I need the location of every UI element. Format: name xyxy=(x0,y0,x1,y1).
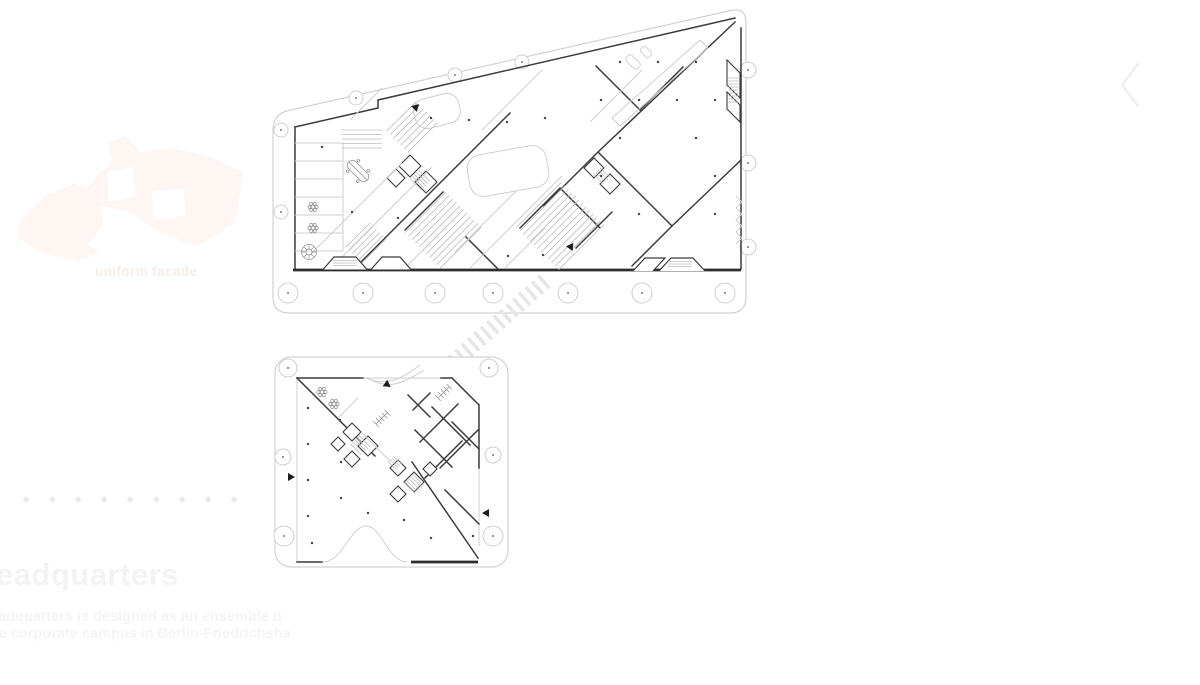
slide-canvas: uniform facade eadquarters eadquarters i… xyxy=(0,0,1200,685)
massing-illustration xyxy=(18,136,243,262)
interior-column-dot xyxy=(638,99,640,101)
column-center-dot xyxy=(492,454,494,456)
column-center-dot xyxy=(747,162,749,164)
interior-column-dot xyxy=(506,121,508,123)
column-center-dot xyxy=(641,292,643,294)
interior-column-dot xyxy=(307,443,309,445)
column-center-dot xyxy=(488,367,490,369)
interior-column-dot xyxy=(367,512,369,514)
interior-column-dot xyxy=(311,542,313,544)
column-center-dot xyxy=(521,61,523,63)
column-center-dot xyxy=(280,129,282,131)
column-center-dot xyxy=(282,456,284,458)
column-center-dot xyxy=(355,97,357,99)
interior-column-dot xyxy=(339,419,341,421)
interior-column-dot xyxy=(321,146,323,148)
column-center-dot xyxy=(567,292,569,294)
massing-window-2 xyxy=(152,188,186,220)
interior-column-dot xyxy=(600,99,602,101)
column-center-dot xyxy=(283,535,285,537)
interior-column-dot xyxy=(542,254,544,256)
floor-plan-large xyxy=(273,10,756,313)
interior-column-dot xyxy=(619,137,621,139)
interior-column-dot xyxy=(714,213,716,215)
interior-column-dot xyxy=(307,479,309,481)
column-center-dot xyxy=(492,535,494,537)
interior-column-dot xyxy=(507,255,509,257)
interior-column-dot xyxy=(676,99,678,101)
massing-window-1 xyxy=(107,167,135,202)
column-center-dot xyxy=(280,211,282,213)
interior-column-dot xyxy=(340,497,342,499)
interior-column-dot xyxy=(600,175,602,177)
interior-column-dot xyxy=(695,137,697,139)
interior-column-dot xyxy=(714,99,716,101)
interior-column-dot xyxy=(657,61,659,63)
floor-plan-small xyxy=(274,357,508,567)
interior-column-dot xyxy=(544,117,546,119)
interior-column-dot xyxy=(638,213,640,215)
interior-column-dot xyxy=(430,117,432,119)
interior-column-dot xyxy=(695,61,697,63)
carousel-prev-icon[interactable] xyxy=(1122,64,1138,106)
interior-column-dot xyxy=(714,175,716,177)
interior-column-dot xyxy=(351,211,353,213)
column-center-dot xyxy=(747,246,749,248)
column-center-dot xyxy=(287,367,289,369)
interior-column-dot xyxy=(397,217,399,219)
column-center-dot xyxy=(362,292,364,294)
interior-column-dot xyxy=(340,461,342,463)
column-center-dot xyxy=(287,292,289,294)
interior-column-dot xyxy=(307,407,309,409)
column-center-dot xyxy=(492,292,494,294)
interior-column-dot xyxy=(468,119,470,121)
column-center-dot xyxy=(434,292,436,294)
column-center-dot xyxy=(454,74,456,76)
column-center-dot xyxy=(747,69,749,71)
page: { "overlay": { "massing_caption": "unifo… xyxy=(0,0,1200,685)
interior-column-dot xyxy=(472,535,474,537)
interior-column-dot xyxy=(619,61,621,63)
interior-column-dot xyxy=(430,537,432,539)
column-center-dot xyxy=(724,292,726,294)
interior-column-dot xyxy=(307,515,309,517)
plan-drawing xyxy=(0,0,1200,685)
interior-column-dot xyxy=(403,519,405,521)
